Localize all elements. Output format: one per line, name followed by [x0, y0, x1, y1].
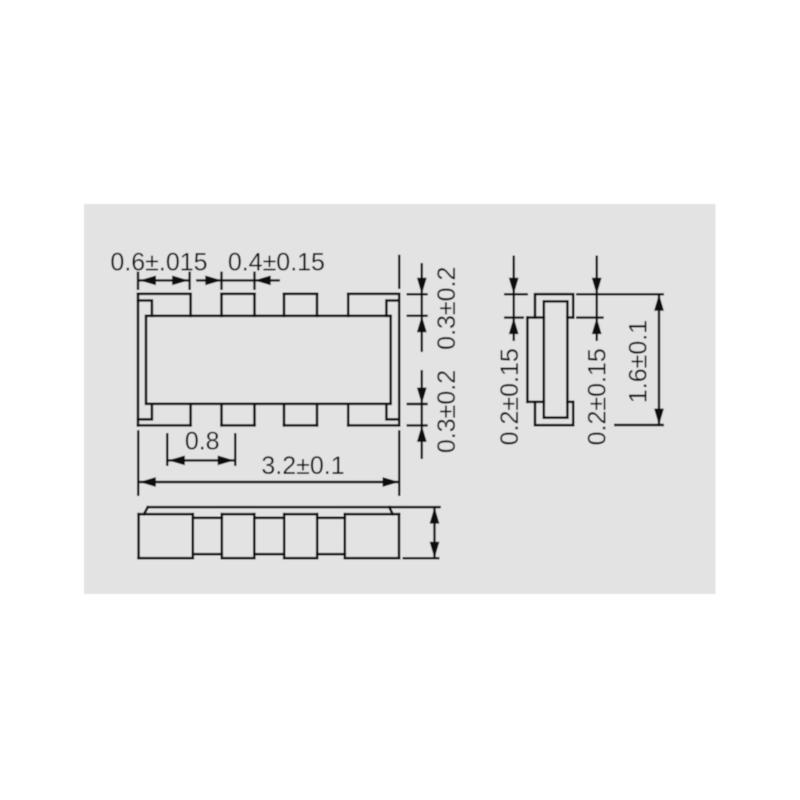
svg-text:0.8: 0.8 [185, 428, 220, 456]
svg-text:0.2±0.15: 0.2±0.15 [583, 348, 611, 445]
svg-text:0.6±.015: 0.6±.015 [110, 249, 207, 277]
svg-text:0.2±0.15: 0.2±0.15 [496, 348, 524, 445]
svg-text:0.4±0.15: 0.4±0.15 [228, 249, 325, 277]
svg-text:0.3±0.2: 0.3±0.2 [433, 267, 461, 350]
svg-text:3.2±0.1: 3.2±0.1 [261, 452, 344, 480]
svg-text:1.6±0.1: 1.6±0.1 [625, 320, 653, 403]
svg-text:0.3±0.2: 0.3±0.2 [433, 370, 461, 453]
